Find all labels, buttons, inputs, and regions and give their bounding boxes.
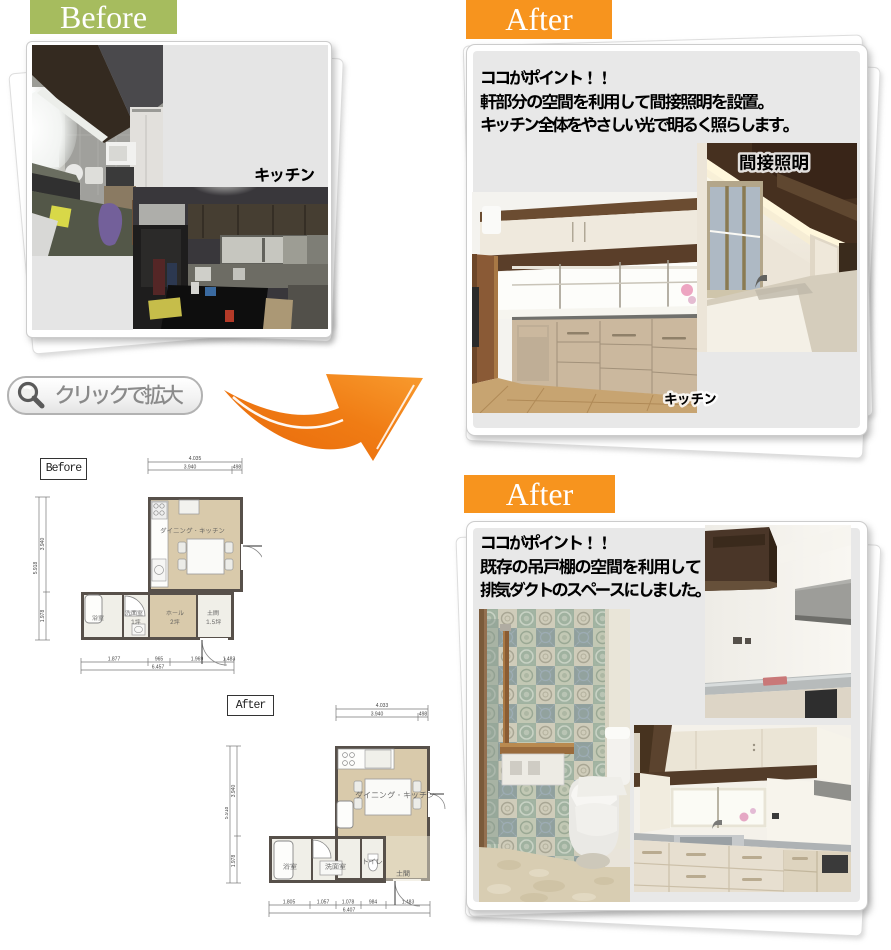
svg-text:1.877: 1.877 xyxy=(108,657,121,663)
svg-text:6.457: 6.457 xyxy=(152,665,165,671)
svg-text:1.078: 1.078 xyxy=(342,900,355,906)
svg-text:498: 498 xyxy=(419,712,428,718)
svg-text:6.407: 6.407 xyxy=(343,908,356,914)
svg-text:5.918: 5.918 xyxy=(225,807,230,820)
svg-text:1.978: 1.978 xyxy=(231,855,237,868)
svg-text:3.940: 3.940 xyxy=(371,712,384,718)
svg-text:498: 498 xyxy=(233,465,242,471)
svg-text:3.940: 3.940 xyxy=(231,785,237,798)
svg-text:4.035: 4.035 xyxy=(189,456,202,462)
svg-text:3.940: 3.940 xyxy=(184,465,197,471)
svg-text:965: 965 xyxy=(155,657,164,663)
svg-text:3.940: 3.940 xyxy=(40,538,46,551)
svg-text:1.805: 1.805 xyxy=(283,900,296,906)
svg-text:984: 984 xyxy=(369,900,378,906)
svg-text:1.483: 1.483 xyxy=(223,657,236,663)
svg-text:4.033: 4.033 xyxy=(376,703,389,709)
svg-text:1.057: 1.057 xyxy=(317,900,330,906)
svg-text:5.918: 5.918 xyxy=(33,562,39,575)
svg-text:1.978: 1.978 xyxy=(40,610,46,623)
